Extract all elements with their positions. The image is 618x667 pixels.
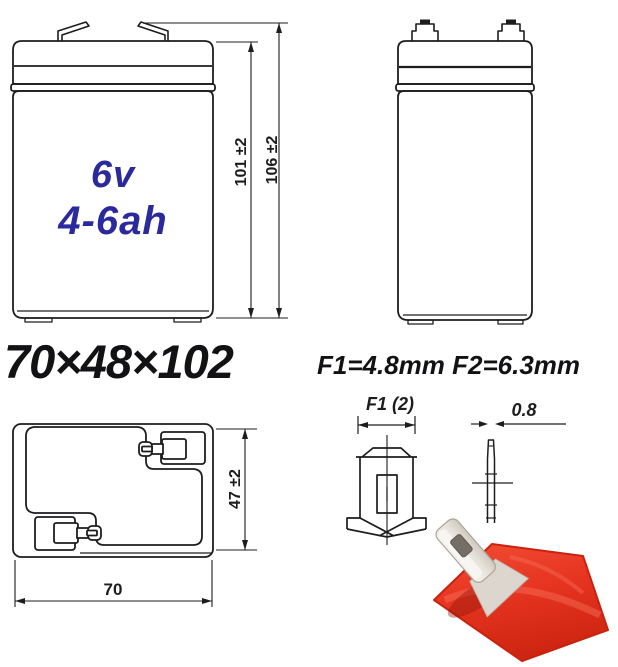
overall-size-label: 70×48×102 <box>4 334 233 389</box>
side-view-drawing <box>380 0 545 340</box>
dim-label-f1-width: F1 (2) <box>345 395 435 413</box>
bottom-left-terminal-tab <box>54 523 101 543</box>
dim-label-thickness: 0.8 <box>494 401 554 419</box>
dim-label-total-height: 106 ±2 <box>264 120 282 200</box>
front-left-terminal <box>58 22 89 41</box>
top-right-terminal-tab <box>139 439 186 459</box>
dim-label-width: 70 <box>93 581 133 599</box>
capacity-amphours: 4-6ah <box>10 197 216 245</box>
side-right-terminal <box>498 24 524 41</box>
top-view-drawing <box>0 415 300 615</box>
battery-spec-sheet: 6v 4-6ah 101 ±2 106 ±2 70×48×102 F1=4.8m… <box>0 0 618 667</box>
dim-label-depth: 47 ±2 <box>227 454 245 524</box>
terminal-spec-label: F1=4.8mm F2=6.3mm <box>317 350 580 381</box>
dim-label-inner-height: 101 ±2 <box>233 122 251 202</box>
capacity-voltage: 6v <box>10 153 216 197</box>
terminal-photo <box>415 495 618 667</box>
side-left-terminal <box>412 24 438 41</box>
capacity-label: 6v 4-6ah <box>10 153 216 245</box>
front-right-terminal <box>138 22 168 41</box>
